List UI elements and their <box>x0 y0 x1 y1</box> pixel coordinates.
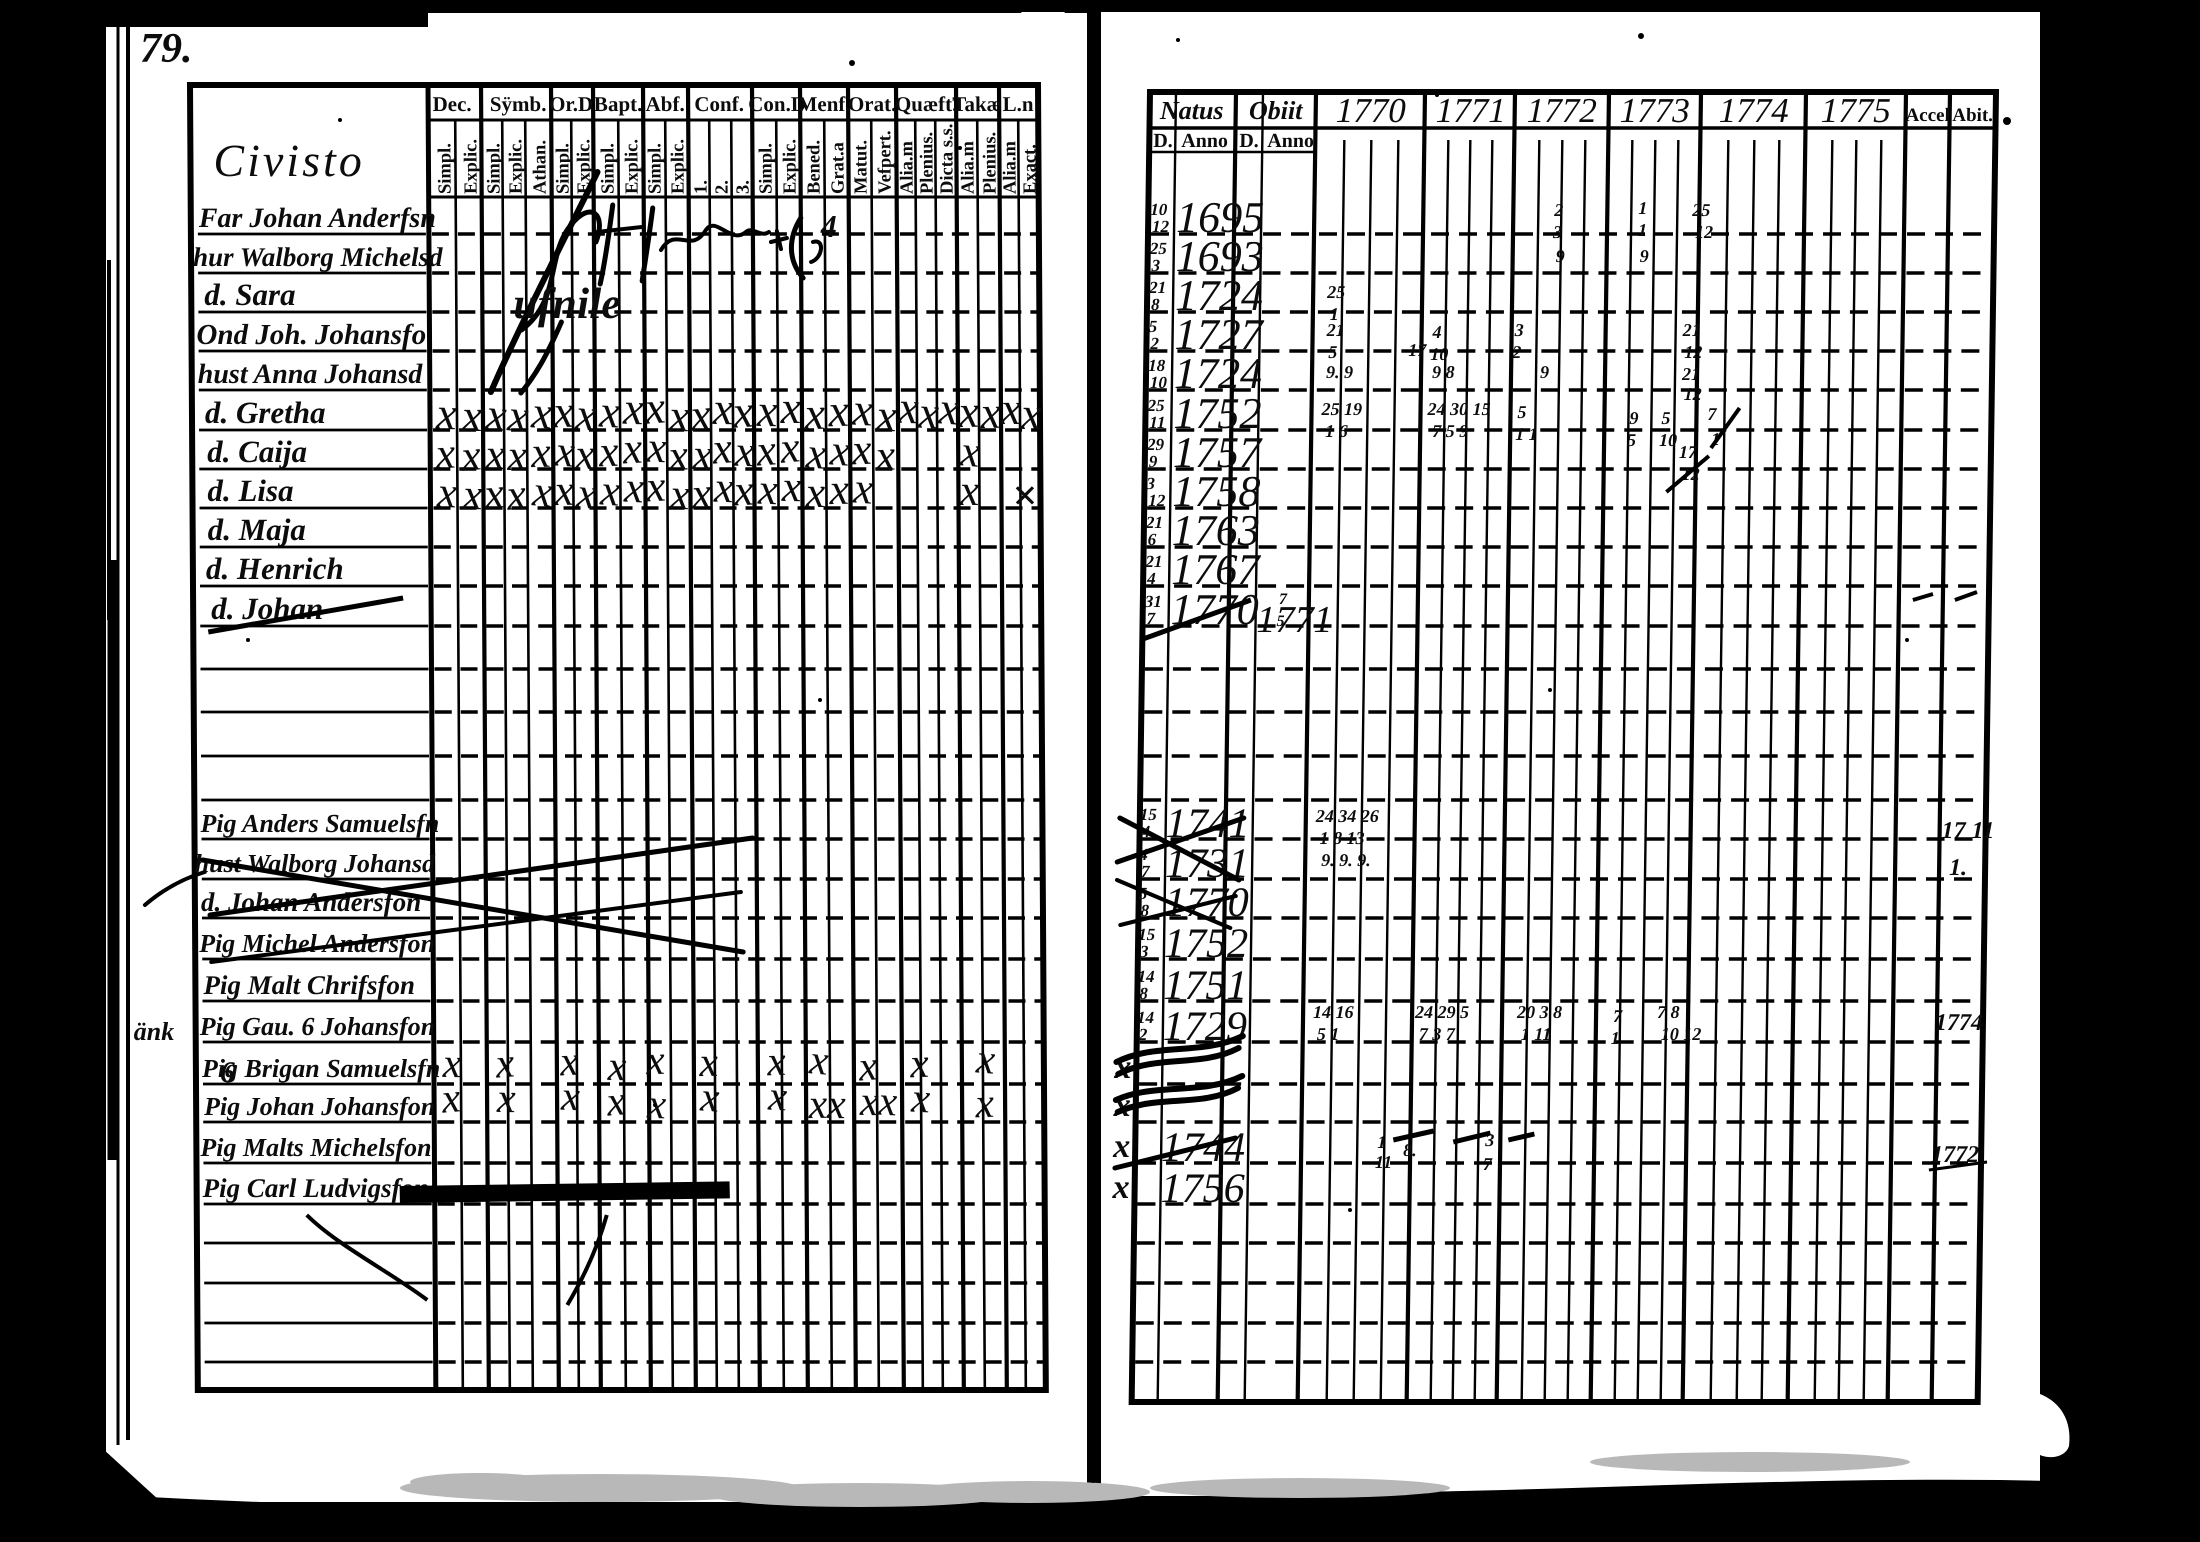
svg-text:D.: D. <box>1239 130 1259 152</box>
svg-text:x: x <box>496 1076 517 1122</box>
svg-text:1752: 1752 <box>1164 921 1249 967</box>
svg-text:x: x <box>959 466 980 515</box>
svg-text:x: x <box>807 1037 831 1085</box>
svg-text:d. Gretha: d. Gretha <box>205 395 326 430</box>
svg-text:Simpl.: Simpl. <box>756 143 776 194</box>
svg-text:Pig Brigan Samuelsfn: Pig Brigan Samuelsfn <box>201 1054 441 1083</box>
svg-text:Pig Malts Michelsfon: Pig Malts Michelsfon <box>199 1133 431 1162</box>
svg-text:x: x <box>805 468 826 517</box>
svg-text:x: x <box>828 465 850 514</box>
svg-text:Grat.a: Grat.a <box>828 142 848 194</box>
svg-text:Simpl.: Simpl. <box>598 143 618 194</box>
svg-text:x: x <box>973 1081 995 1128</box>
svg-text:Simpl.: Simpl. <box>645 143 665 194</box>
svg-text:x: x <box>1111 1169 1130 1206</box>
svg-text:Conf.: Conf. <box>694 92 744 116</box>
svg-text:Dec.: Dec. <box>433 92 472 116</box>
svg-text:3: 3 <box>1150 256 1160 275</box>
svg-text:Civisto: Civisto <box>213 135 365 186</box>
svg-text:x: x <box>1112 1128 1131 1165</box>
svg-text:d. Sara: d. Sara <box>204 277 296 312</box>
svg-text:12: 12 <box>1148 491 1166 510</box>
svg-text:1771: 1771 <box>1256 599 1333 641</box>
svg-text:20 3 8: 20 3 8 <box>1516 1002 1562 1022</box>
svg-text:11: 11 <box>1375 1152 1392 1172</box>
svg-text:1770: 1770 <box>1335 91 1406 130</box>
svg-text:9 8: 9 8 <box>1432 362 1455 382</box>
svg-text:4: 4 <box>1146 569 1156 588</box>
svg-text:10: 10 <box>1430 344 1448 364</box>
svg-text:Exact.: Exact. <box>1020 144 1040 194</box>
svg-text:Explic.: Explic. <box>668 139 688 194</box>
svg-text:Alia.m: Alia.m <box>1000 140 1020 194</box>
svg-text:x: x <box>873 431 897 481</box>
svg-text:x: x <box>974 1036 997 1083</box>
svg-text:4: 4 <box>1432 322 1442 342</box>
svg-text:24 30 15: 24 30 15 <box>1426 399 1490 419</box>
svg-text:x: x <box>553 466 575 515</box>
svg-text:x: x <box>909 1076 931 1123</box>
svg-text:Bapt.: Bapt. <box>594 92 643 116</box>
svg-text:x: x <box>731 466 755 516</box>
svg-text:1773: 1773 <box>1619 91 1690 130</box>
svg-text:x: x <box>689 468 714 518</box>
svg-text:7 3 7: 7 3 7 <box>1419 1024 1456 1044</box>
svg-text:Pig Anders Samuelsfn: Pig Anders Samuelsfn <box>199 809 439 838</box>
svg-text:8.: 8. <box>1403 1140 1417 1160</box>
svg-text:12: 12 <box>1152 217 1170 236</box>
svg-text:x: x <box>876 1079 898 1126</box>
svg-text:1756: 1756 <box>1160 1166 1245 1212</box>
svg-text:Anno: Anno <box>1267 130 1314 152</box>
svg-text:Simpl.: Simpl. <box>553 143 573 194</box>
svg-text:x: x <box>622 462 645 512</box>
svg-text:5: 5 <box>1517 402 1526 422</box>
svg-text:5: 5 <box>1661 408 1670 428</box>
svg-text:ufnile: ufnile <box>513 279 621 328</box>
svg-text:5: 5 <box>1276 613 1284 630</box>
svg-text:Menf.: Menf. <box>798 92 851 116</box>
svg-text:Or.D: Or.D <box>549 92 593 116</box>
svg-text:5: 5 <box>1328 342 1337 362</box>
svg-text:1: 1 <box>1638 220 1647 240</box>
svg-text:1729: 1729 <box>1163 1004 1248 1050</box>
svg-text:10: 10 <box>1659 430 1677 450</box>
svg-text:d. Henrich: d. Henrich <box>206 551 344 586</box>
svg-text:1774: 1774 <box>1935 1010 1983 1036</box>
svg-text:änk: änk <box>134 1017 175 1046</box>
svg-text:3: 3 <box>1552 222 1562 242</box>
svg-text:Bened.: Bened. <box>804 140 824 194</box>
svg-text:Explic.: Explic. <box>506 139 526 194</box>
svg-text:Pig Johan Johansfon: Pig Johan Johansfon <box>203 1092 435 1121</box>
svg-text:Simpl.: Simpl. <box>484 143 504 194</box>
svg-text:21: 21 <box>1326 320 1345 340</box>
svg-text:9: 9 <box>1640 246 1649 266</box>
svg-text:Dicta s.s.: Dicta s.s. <box>937 124 957 194</box>
svg-text:8: 8 <box>1139 984 1148 1003</box>
svg-text:x: x <box>859 1079 880 1125</box>
svg-text:d. Lisa: d. Lisa <box>207 473 293 508</box>
svg-text:x: x <box>643 462 667 512</box>
svg-text:2: 2 <box>1511 342 1521 362</box>
svg-text:x: x <box>698 1074 721 1121</box>
svg-text:Explic.: Explic. <box>461 139 481 194</box>
svg-text:×: × <box>1012 471 1037 520</box>
svg-text:10: 10 <box>1150 373 1168 392</box>
svg-text:9. 9: 9. 9 <box>1326 362 1353 382</box>
svg-text:3: 3 <box>1514 320 1524 340</box>
svg-text:6: 6 <box>1148 530 1157 549</box>
svg-text:Anno: Anno <box>1181 130 1228 152</box>
svg-text:79.: 79. <box>140 26 193 72</box>
svg-text:5: 5 <box>1627 430 1636 450</box>
svg-text:Vefpert.: Vefpert. <box>875 130 895 194</box>
svg-text:Natus: Natus <box>1159 96 1224 125</box>
svg-text:Simpl.: Simpl. <box>435 143 455 194</box>
svg-text:Pig Carl Ludvigsfon: Pig Carl Ludvigsfon <box>202 1173 430 1203</box>
svg-text:12: 12 <box>1695 222 1713 242</box>
svg-text:9: 9 <box>1556 246 1565 266</box>
svg-text:1 8 13: 1 8 13 <box>1319 828 1364 848</box>
svg-text:5 1: 5 1 <box>1317 1024 1340 1044</box>
svg-text:Athan.: Athan. <box>530 140 550 194</box>
svg-text:1.: 1. <box>1949 855 1967 881</box>
svg-text:21: 21 <box>1682 320 1701 340</box>
svg-text:x: x <box>781 462 803 511</box>
svg-text:Obiit: Obiit <box>1249 96 1304 125</box>
svg-text:Accel: Accel <box>1905 105 1950 126</box>
svg-text:x: x <box>644 1038 666 1085</box>
svg-text:Pig Malt Chrifsfon: Pig Malt Chrifsfon <box>202 970 415 1000</box>
svg-text:Far Johan Anderfsn: Far Johan Anderfsn <box>198 203 436 234</box>
svg-text:8: 8 <box>1151 295 1160 314</box>
svg-text:x: x <box>826 1082 847 1128</box>
svg-text:x: x <box>807 1082 828 1128</box>
svg-text:21: 21 <box>1681 364 1700 384</box>
svg-text:9: 9 <box>1629 408 1638 428</box>
svg-text:D.: D. <box>1153 130 1173 152</box>
svg-text:7: 7 <box>1279 591 1288 608</box>
svg-text:17 11: 17 11 <box>1941 818 1994 844</box>
svg-text:L.n: L.n <box>1003 92 1034 116</box>
svg-text:17: 17 <box>1408 340 1427 360</box>
svg-text:1: 1 <box>1638 198 1647 218</box>
svg-text:3: 3 <box>1139 942 1149 961</box>
svg-text:7: 7 <box>1707 404 1717 424</box>
svg-text:x: x <box>979 387 1002 438</box>
svg-text:hur Walborg Michelsd: hur Walborg Michelsd <box>193 242 443 272</box>
svg-text:x: x <box>598 465 622 515</box>
svg-text:Matut.: Matut. <box>851 140 871 194</box>
svg-text:hust Anna Johansd: hust Anna Johansd <box>198 359 424 390</box>
svg-text:2: 2 <box>1553 200 1563 220</box>
svg-text:1 1: 1 1 <box>1515 424 1538 444</box>
svg-text:1751: 1751 <box>1163 963 1248 1009</box>
svg-text:9: 9 <box>1149 452 1158 471</box>
svg-text:x: x <box>560 1074 581 1121</box>
svg-text:x: x <box>756 465 778 515</box>
svg-text:1771: 1771 <box>1435 91 1506 130</box>
svg-text:x: x <box>851 463 875 513</box>
svg-text:17: 17 <box>1679 442 1698 462</box>
svg-text:Takæ: Takæ <box>952 92 1002 116</box>
svg-text:d. Maja: d. Maja <box>208 512 306 547</box>
svg-text:3.: 3. <box>734 180 754 194</box>
svg-text:Abit.: Abit. <box>1952 105 1993 126</box>
svg-text:Pig Gau. 6 Johansfon: Pig Gau. 6 Johansfon <box>199 1012 436 1041</box>
svg-text:x: x <box>1020 388 1043 439</box>
svg-text:9. 9. 9.: 9. 9. 9. <box>1321 850 1371 870</box>
svg-text:25: 25 <box>1326 282 1345 302</box>
svg-text:x: x <box>712 463 734 513</box>
svg-text:Sÿmb.: Sÿmb. <box>490 92 547 116</box>
svg-text:x: x <box>462 470 484 519</box>
svg-text:11: 11 <box>1149 413 1165 432</box>
svg-text:25: 25 <box>1691 200 1710 220</box>
svg-text:Quæft.: Quæft. <box>895 92 958 116</box>
svg-text:1: 1 <box>1611 1028 1620 1048</box>
svg-text:24 29 5: 24 29 5 <box>1414 1002 1469 1022</box>
svg-text:1 6: 1 6 <box>1325 421 1348 441</box>
svg-text:4: 4 <box>820 208 837 244</box>
svg-text:2.: 2. <box>713 180 733 194</box>
svg-text:Abf.: Abf. <box>645 92 684 116</box>
svg-text:x: x <box>1000 383 1022 434</box>
svg-text:x: x <box>435 467 458 517</box>
svg-text:2: 2 <box>1149 334 1159 353</box>
svg-text:24 34 26: 24 34 26 <box>1315 806 1379 826</box>
svg-text:2: 2 <box>1138 1025 1148 1044</box>
svg-text:7 8: 7 8 <box>1657 1002 1680 1022</box>
svg-text:10 12: 10 12 <box>1661 1024 1702 1044</box>
svg-text:Orat.: Orat. <box>848 92 897 116</box>
svg-text:Pig Michel Andersfon: Pig Michel Andersfon <box>198 929 435 958</box>
svg-text:1775: 1775 <box>1820 91 1891 130</box>
svg-text:Alia.m: Alia.m <box>897 140 917 194</box>
svg-text:1772: 1772 <box>1526 91 1597 130</box>
svg-text:Explic.: Explic. <box>780 139 800 194</box>
svg-text:12: 12 <box>1684 384 1702 404</box>
svg-text:x: x <box>668 470 690 520</box>
svg-text:Ond Joh. Johansfo: Ond Joh. Johansfo <box>196 319 426 351</box>
svg-text:1.: 1. <box>692 180 712 194</box>
svg-text:x: x <box>897 382 920 434</box>
svg-text:25 19: 25 19 <box>1320 399 1362 419</box>
svg-text:12: 12 <box>1684 342 1702 362</box>
svg-text:7: 7 <box>1613 1006 1623 1026</box>
svg-text:Explic.: Explic. <box>622 139 642 194</box>
svg-text:9: 9 <box>1540 362 1549 382</box>
svg-text:x: x <box>766 1074 788 1121</box>
svg-text:1774: 1774 <box>1718 91 1789 130</box>
svg-text:6: 6 <box>220 1056 235 1089</box>
svg-text:Plenius.: Plenius. <box>917 132 937 194</box>
svg-text:7 5 9: 7 5 9 <box>1432 421 1468 441</box>
svg-text:14 16: 14 16 <box>1313 1002 1354 1022</box>
svg-text:1: 1 <box>1377 1132 1386 1152</box>
svg-text:d. Caija: d. Caija <box>207 434 307 469</box>
svg-text:7: 7 <box>1483 1154 1493 1174</box>
svg-text:1 11: 1 11 <box>1521 1024 1552 1044</box>
svg-text:Plenius.: Plenius. <box>980 132 1000 194</box>
